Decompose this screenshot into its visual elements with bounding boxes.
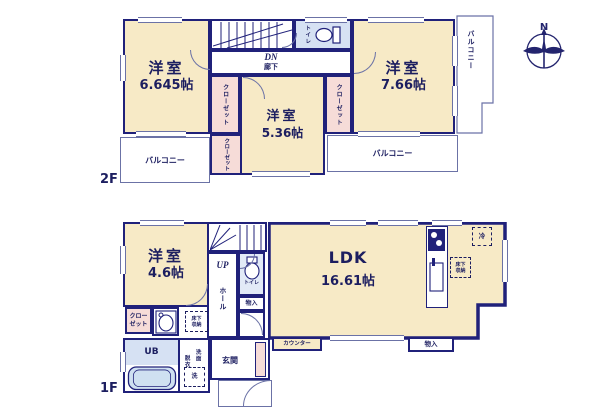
fridge-label: 冷	[479, 233, 486, 241]
window	[140, 220, 184, 226]
stairs-treads	[213, 22, 292, 48]
staircase-1f	[207, 222, 267, 252]
bathroom: UB	[123, 338, 180, 393]
shoe-cabinet	[255, 342, 266, 377]
stairs-treads	[210, 225, 265, 250]
balcony-2f-side-label: バルコニー	[466, 30, 476, 100]
kitchen-counter	[426, 226, 448, 308]
toilet-icon	[314, 24, 342, 46]
window	[120, 246, 126, 274]
room-size: 7.66帖	[381, 78, 426, 94]
closet-2f-left: クローゼット	[210, 75, 240, 134]
window	[138, 17, 182, 23]
bedroom-2f-1: 洋室 6.645帖	[123, 19, 210, 134]
washer-label: 洗	[191, 373, 197, 380]
toilet-label: トイレ	[304, 23, 311, 47]
storage-ldk: 物入	[408, 337, 454, 352]
toilet-2f: トイレ	[294, 19, 352, 50]
window	[330, 220, 366, 226]
floor2-label: 2F	[100, 172, 118, 187]
toilet-label: トイレ	[244, 280, 259, 286]
closet-label: クローゼット	[223, 137, 230, 173]
window	[432, 220, 462, 226]
closet-label: クローゼット	[221, 78, 228, 132]
storage-hall-1f: 物入	[238, 296, 265, 311]
room-size: 4.6帖	[148, 266, 184, 282]
balcony-2f-left: バルコニー	[120, 137, 210, 183]
counter: カウンター	[272, 337, 322, 351]
hallway-label: 廊下	[246, 63, 296, 72]
room-size: 6.645帖	[139, 78, 193, 94]
washbasin-label: 洗面	[194, 344, 201, 366]
window	[452, 86, 458, 116]
unit-bath-label: UB	[144, 347, 158, 358]
closet-label: クローゼット	[335, 78, 342, 132]
ldk-size: 16.61帖	[308, 270, 388, 289]
counter-label: カウンター	[283, 341, 311, 348]
window	[378, 220, 418, 226]
washbasin-icon	[155, 310, 177, 334]
underfloor-storage-label: 床下収納	[191, 316, 202, 328]
room-name: 洋室	[148, 247, 184, 266]
closet-1f: クローゼット	[125, 307, 152, 334]
bathtub-icon	[127, 366, 177, 391]
window	[252, 171, 310, 177]
window	[358, 131, 420, 137]
washbasin-unit	[152, 307, 179, 336]
closet-2f-bottom: クローゼット	[210, 134, 242, 175]
bedroom-2f-2: 洋室 7.66帖	[352, 19, 455, 134]
room-size: 5.36帖	[262, 126, 304, 141]
fridge-space: 冷	[472, 227, 492, 246]
kitchen-fixtures	[427, 227, 446, 306]
balcony-2f-bottom: バルコニー	[327, 135, 458, 172]
storage-label: 物入	[245, 300, 257, 307]
hall-label: ホール	[218, 277, 227, 321]
underfloor-storage-label: 床下収納	[455, 262, 466, 274]
room-name: 洋室	[148, 59, 184, 78]
floor-plan: バルコニー バルコニー バルコニー 洋室 6.645帖 トイレ 洋室	[0, 0, 600, 413]
stairs-direction-label: DN	[246, 52, 296, 63]
underfloor-storage-right: 床下収納	[450, 257, 471, 278]
window	[502, 240, 508, 282]
compass-north-label: N	[540, 22, 548, 33]
window	[452, 36, 458, 66]
entrance-label: 玄関	[222, 356, 238, 366]
unit-bath-area: UB	[125, 340, 178, 365]
hallway-2f: DN 廊下	[210, 50, 352, 75]
compass-icon: N	[519, 20, 569, 76]
window	[368, 17, 424, 23]
underfloor-storage-left: 床下収納	[185, 311, 208, 332]
floor1-label: 1F	[100, 381, 118, 396]
closet-label: クローゼット	[129, 313, 149, 327]
room-name: 洋室	[266, 109, 298, 125]
entrance: 玄関	[210, 338, 270, 380]
balcony-label: バルコニー	[373, 148, 413, 159]
window	[330, 335, 404, 341]
storage-label: 物入	[425, 341, 438, 349]
ldk-name: LDK	[308, 248, 388, 267]
closet-2f-right: クローゼット	[325, 75, 352, 134]
window	[120, 352, 126, 372]
balcony-label: バルコニー	[145, 155, 185, 166]
hall-1f: UP ホール	[207, 252, 238, 338]
room-name: 洋室	[385, 59, 421, 78]
washer-space: 洗	[184, 367, 205, 387]
stairs-direction-label: UP	[217, 260, 229, 271]
window	[120, 55, 126, 81]
window	[305, 17, 347, 23]
window	[136, 131, 186, 137]
